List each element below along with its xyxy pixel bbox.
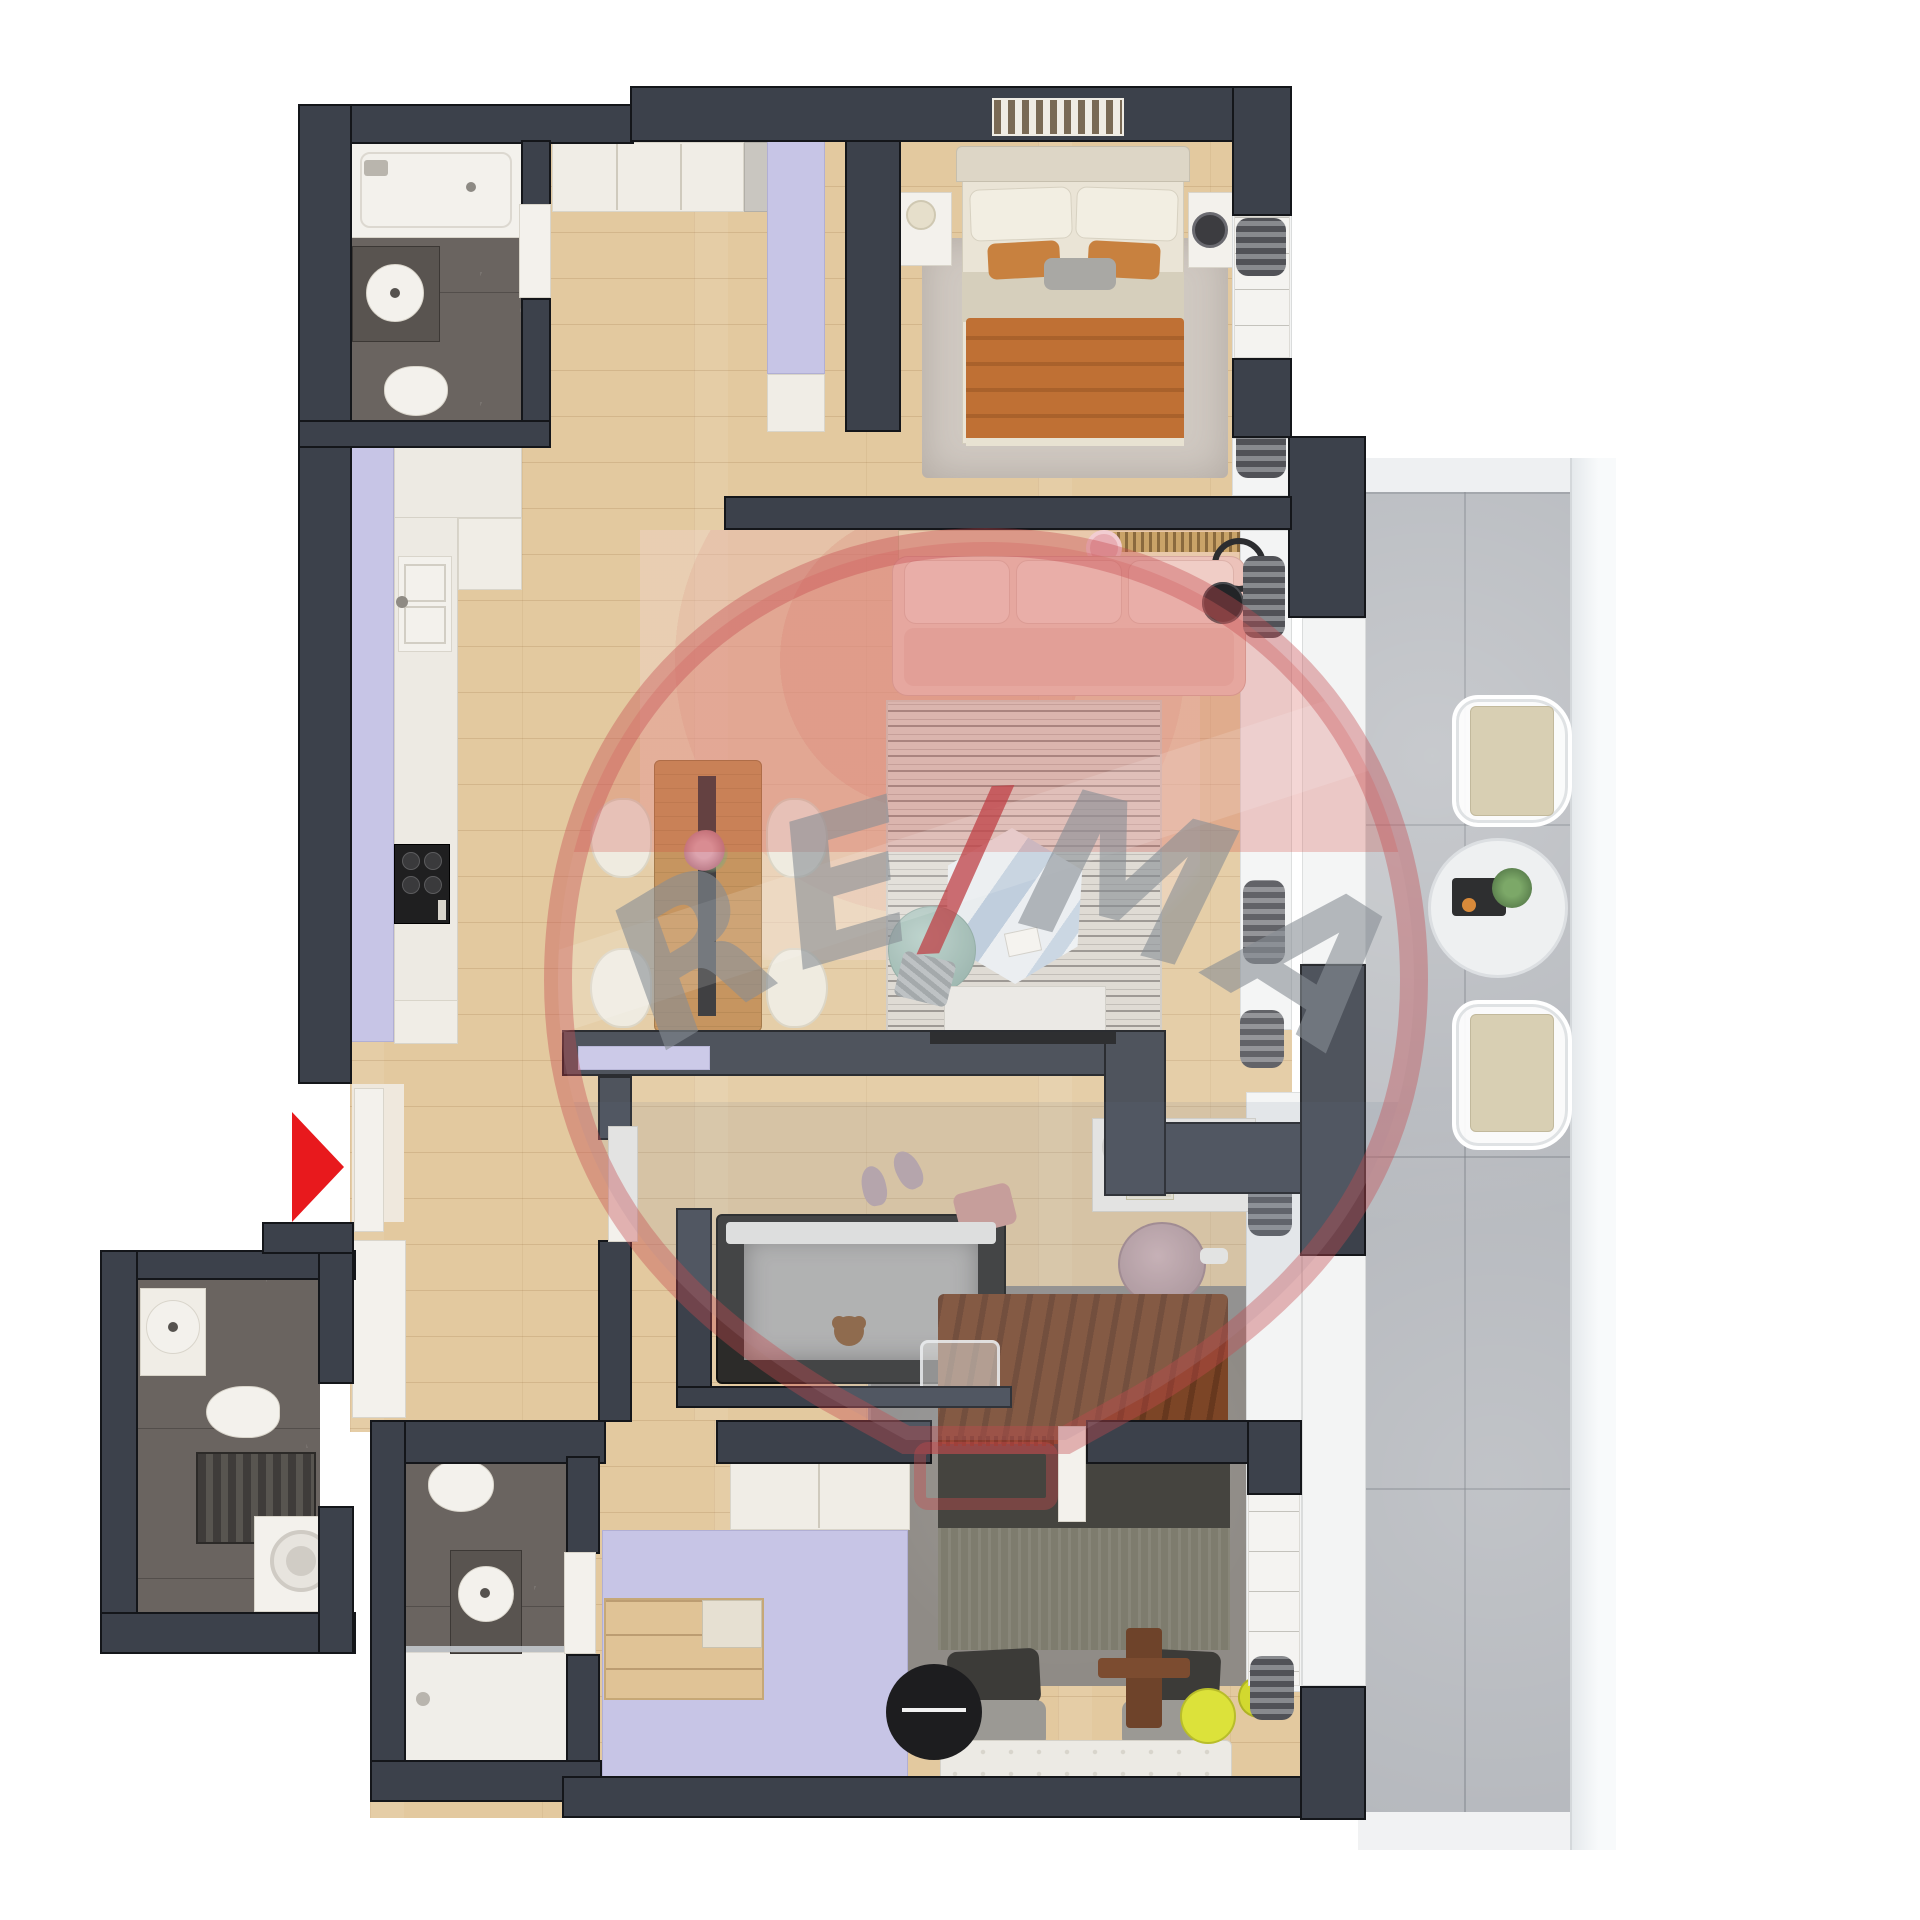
sofa-back-cushion-1 <box>904 560 1010 624</box>
nursery-door-leaf <box>608 1126 638 1242</box>
wall-bedroom1-east-lower <box>1232 358 1292 438</box>
wall-divider-south-left <box>716 1420 932 1464</box>
bathroom1-door-leaf <box>519 204 551 298</box>
wall-bath3-east-lower <box>318 1506 354 1654</box>
closet-white-cabinet <box>730 1460 910 1530</box>
bathroom2-sink-drain <box>480 1588 490 1598</box>
bed1-gray-pillow <box>1044 258 1116 290</box>
kitchen-cabinet-top <box>458 518 522 590</box>
wall-top-right <box>630 86 1234 142</box>
yellow-stool <box>1180 1688 1236 1744</box>
bathroom3-toilet <box>206 1386 280 1438</box>
bathtub-faucet <box>364 160 388 176</box>
teddy-bear <box>834 1316 864 1346</box>
bed2-caddy-tray <box>1126 1628 1162 1728</box>
bed1-pillow-left <box>969 186 1073 242</box>
dining-chair-1 <box>590 798 652 878</box>
bedroom1-curtain-top <box>1236 218 1286 276</box>
wall-bath3-west <box>100 1250 138 1654</box>
living-curtain-east-mid <box>1243 880 1285 964</box>
balcony-chair-north-cushion <box>1470 706 1554 816</box>
wall-bath2-east-upper <box>566 1456 600 1554</box>
bathroom2-toilet <box>428 1460 494 1512</box>
office-chair-armrest <box>1200 1248 1228 1264</box>
wall-east-block-mid <box>1300 964 1366 1256</box>
bed2-caddy-bar <box>1098 1658 1190 1678</box>
wall-bedroom1-west <box>845 140 901 432</box>
dining-chair-4 <box>766 948 828 1028</box>
bathtub-drain <box>466 182 476 192</box>
balcony-railing <box>1570 458 1616 1850</box>
wall-bath1-south <box>298 420 551 448</box>
entrance-arrow-icon <box>292 1112 344 1222</box>
hall-cabinet-below <box>767 374 825 432</box>
dining-flower-vase <box>684 830 728 874</box>
kitchen-faucet <box>396 596 408 608</box>
wall-crib-niche-south <box>676 1386 1012 1408</box>
balcony-tile-floor <box>1358 492 1570 1812</box>
wall-bedroom1-living-divider <box>724 496 1292 530</box>
washer-drum-inner <box>286 1546 316 1576</box>
closet-shelf-box <box>702 1600 762 1648</box>
balcony-bottom-band <box>1358 1812 1570 1850</box>
wall-bath1-east-upper <box>521 140 551 210</box>
bedroom2-black-side-table <box>886 1664 982 1760</box>
bedroom2-window-dresser <box>1248 1470 1300 1686</box>
wall-tv <box>930 1032 1116 1044</box>
wall-bath2-east-lower <box>566 1654 600 1764</box>
wall-divider-step <box>1247 1420 1302 1495</box>
dining-table-runner <box>698 776 716 1016</box>
closet-cabinet-divider <box>818 1462 820 1528</box>
kitchen-counter-lavender <box>350 446 394 1042</box>
bed1-orange-blanket <box>966 318 1184 444</box>
balcony-plant <box>1492 868 1532 908</box>
bedroom2-curtain-bottom <box>1250 1656 1294 1720</box>
kitchen-end-cabinet <box>394 1000 458 1044</box>
entrance-door-leaf <box>354 1088 384 1232</box>
kitchen-sink-basin-a <box>404 564 446 602</box>
wall-se-corner <box>1300 1686 1366 1820</box>
bed1-foot-line <box>966 438 1184 446</box>
kitchen-sink-basin-b <box>404 606 446 644</box>
wall-south <box>562 1776 1310 1818</box>
tv-console <box>944 986 1106 1034</box>
bed2-lower-duvet <box>938 1528 1230 1650</box>
bathroom3-sink-drain <box>168 1322 178 1332</box>
hall-wardrobe-lavender <box>767 128 825 374</box>
bathroom1-sink-drain <box>390 288 400 298</box>
hall-closet <box>552 142 744 212</box>
sofa-seat <box>904 628 1234 686</box>
bed1-pillow-right <box>1075 186 1179 242</box>
wall-ne-corner <box>1232 86 1292 216</box>
living-curtain-east-top <box>1243 556 1285 638</box>
east-window-strip-living <box>1302 618 1366 964</box>
floor-plan-canvas: RE/MAX <box>0 0 1920 1920</box>
wall-nursery-west-lower <box>598 1240 632 1422</box>
balcony-chair-south-cushion <box>1470 1014 1554 1132</box>
bedroom1-lamp-left <box>906 200 936 230</box>
bedroom1-wall-art <box>992 98 1124 136</box>
entry-sideboard <box>352 1240 406 1418</box>
sliding-door-panel <box>578 1046 710 1070</box>
sofa-back-cushion-2 <box>1016 560 1122 624</box>
wall-west <box>298 104 352 1084</box>
wall-bath2-west <box>370 1420 406 1802</box>
hob-knob-strip <box>438 900 446 920</box>
kitchen-worktop <box>394 446 458 1042</box>
hall-closet-door-line-1 <box>616 144 618 210</box>
kitchen-worktop-return <box>394 446 522 518</box>
crib-bedding <box>726 1222 996 1244</box>
bed1-headboard <box>956 146 1190 182</box>
hob-burner-3 <box>402 876 420 894</box>
hob-burner-2 <box>424 852 442 870</box>
bathroom2-door-leaf <box>564 1552 596 1654</box>
shower-drain <box>416 1692 430 1706</box>
black-table-highlight <box>902 1708 966 1712</box>
wall-crib-niche <box>676 1208 712 1388</box>
dining-chair-3 <box>766 798 828 878</box>
wall-living-ne-block <box>1288 436 1366 618</box>
bathroom1-toilet <box>384 366 448 416</box>
bedroom1-lamp-right <box>1192 212 1228 248</box>
bathroom2-shower-floor <box>404 1652 568 1764</box>
hob-burner-4 <box>424 876 442 894</box>
balcony-tray-fruit <box>1462 898 1476 912</box>
living-lamp-disc <box>1202 582 1244 624</box>
hall-closet-door-line-2 <box>680 144 682 210</box>
wall-connector-south-east <box>1104 1030 1166 1196</box>
bedroom2-door-leaf <box>1058 1426 1086 1522</box>
dining-chair-2 <box>590 948 652 1028</box>
wall-entry-stub <box>262 1222 354 1254</box>
hob-burner-1 <box>402 852 420 870</box>
wall-bath3-east-upper <box>318 1250 354 1384</box>
east-window-strip-south <box>1302 1254 1366 1686</box>
living-curtain-east-low <box>1240 1010 1284 1068</box>
shower-glass-screen <box>404 1646 568 1652</box>
